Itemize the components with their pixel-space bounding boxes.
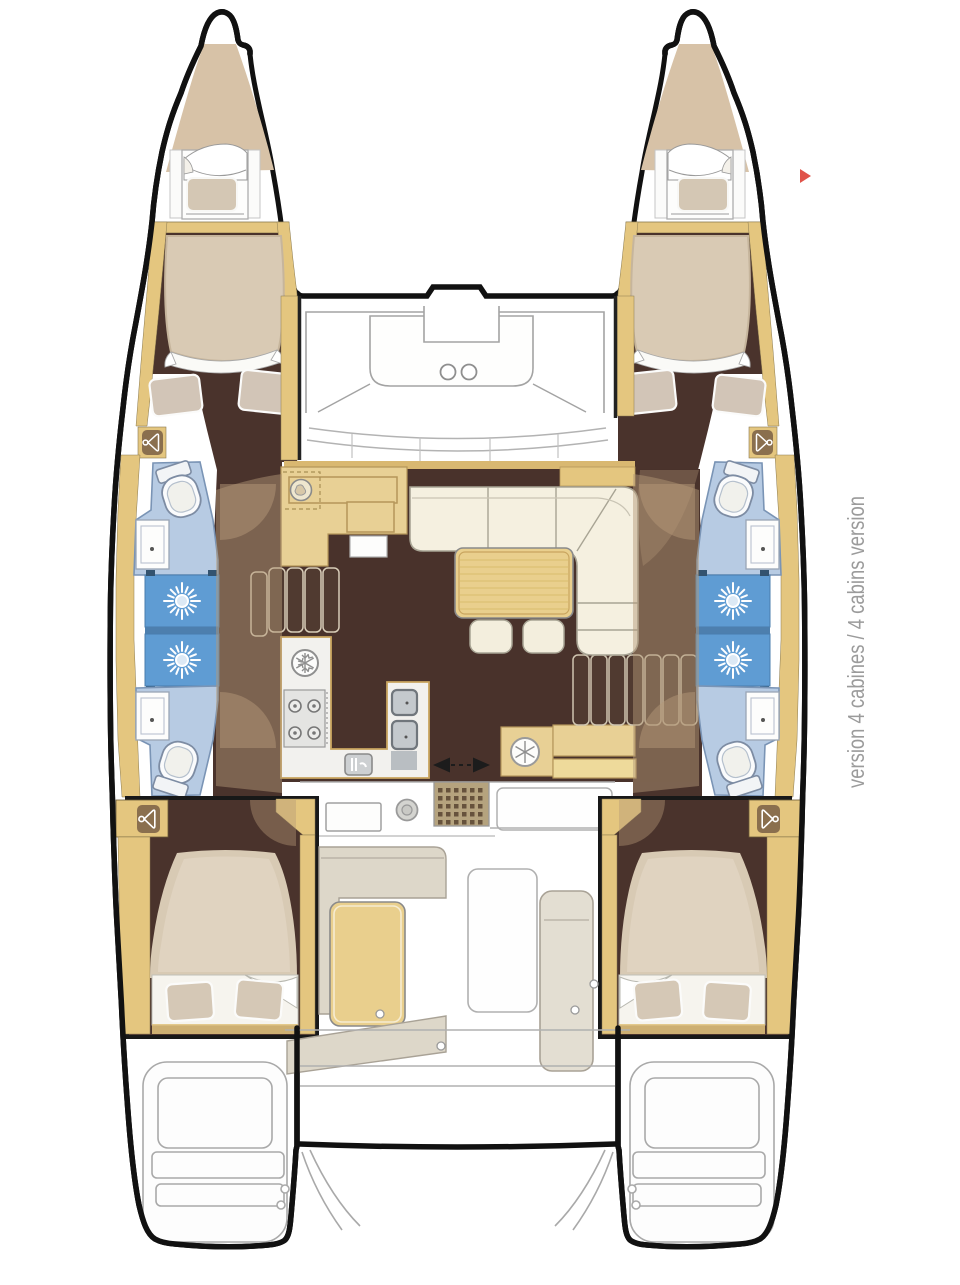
svg-text:version 4 cabines / 4 cabins v: version 4 cabines / 4 cabins version (843, 496, 869, 788)
